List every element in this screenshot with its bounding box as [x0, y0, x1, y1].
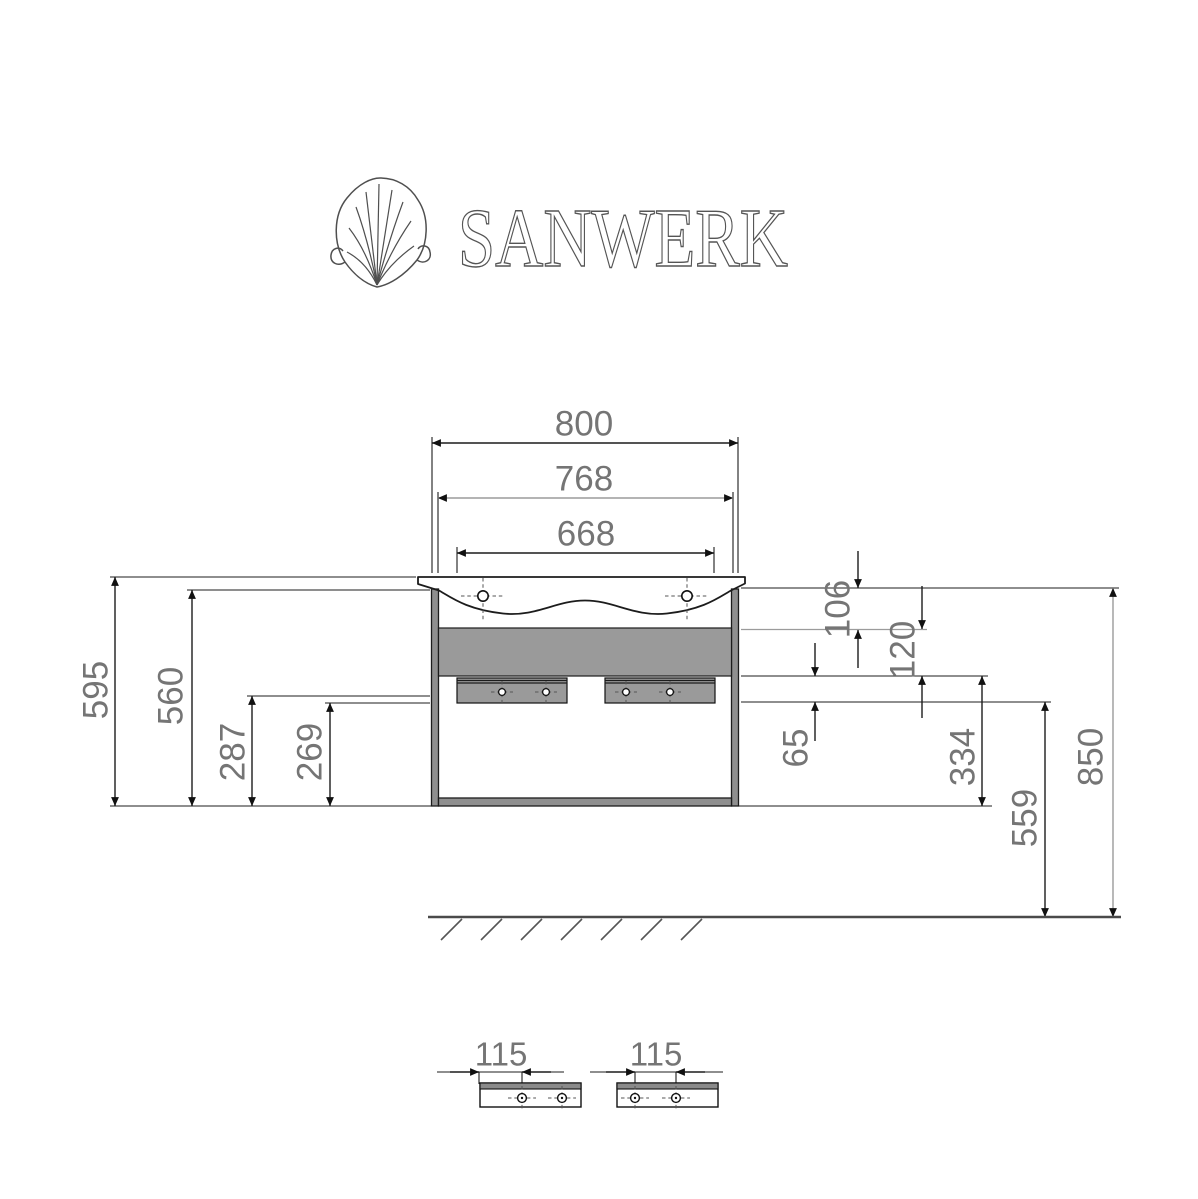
top-dimensions: 800 768 668: [432, 405, 738, 574]
scallop-shell-icon: [331, 178, 430, 287]
screw-hole: [499, 689, 506, 696]
washbasin: [418, 577, 745, 621]
bracket-rail-strip: [617, 1083, 718, 1089]
cabinet-left-panel: [432, 589, 439, 806]
screw-hole: [623, 689, 630, 696]
mounting-bracket-left: [457, 678, 567, 703]
cabinet: [432, 589, 739, 806]
dim-label-287: 287: [214, 723, 253, 781]
dim-label-560: 560: [152, 667, 191, 725]
brand-wordmark: SANWERK: [458, 192, 788, 285]
dim-label-269: 269: [291, 723, 330, 781]
screw-hole: [543, 689, 550, 696]
brand-logo: SANWERK: [331, 178, 788, 287]
mounting-bracket-right: [605, 678, 715, 703]
dim-label-106: 106: [819, 580, 858, 638]
dim-label-800: 800: [555, 405, 613, 444]
dim-label-65: 65: [777, 729, 816, 768]
left-dimensions: 595 560 287 269: [77, 577, 432, 806]
dim-label-115-left: 115: [475, 1036, 528, 1073]
cabinet-bottom-panel: [439, 798, 732, 806]
faucet-hole-left: [461, 578, 505, 621]
screw-hole-center: [675, 1097, 677, 1099]
bracket-detail-left: 115: [437, 1036, 581, 1112]
faucet-hole-right: [665, 578, 709, 621]
vanity-dimension-drawing: SANWERK: [0, 0, 1198, 1199]
floor-hatching: [441, 919, 702, 940]
dim-label-850: 850: [1072, 728, 1111, 786]
drawer-front-band: [439, 628, 732, 676]
bracket-rail-strip: [480, 1083, 581, 1089]
dim-label-120: 120: [884, 621, 923, 679]
technical-drawing-page: SANWERK: [0, 0, 1198, 1199]
dim-label-768: 768: [555, 460, 613, 499]
floor: [428, 917, 1121, 940]
dim-label-668: 668: [557, 515, 615, 554]
faucet-hole: [478, 591, 488, 601]
dim-label-595: 595: [77, 661, 116, 719]
screw-hole: [667, 689, 674, 696]
basin-outline: [418, 577, 745, 614]
bracket-body: [457, 678, 567, 703]
faucet-hole: [682, 591, 692, 601]
screw-hole-center: [521, 1097, 523, 1099]
screw-hole-center: [634, 1097, 636, 1099]
shell-ribs: [347, 184, 414, 285]
shell-left-curl: [331, 248, 345, 264]
cabinet-right-panel: [732, 589, 739, 806]
right-dimensions: 106 120 65 334 559 850: [738, 551, 1119, 917]
bracket-detail-right: 115: [590, 1036, 723, 1112]
dim-label-334: 334: [944, 728, 983, 786]
dim-label-115-right: 115: [630, 1036, 683, 1073]
screw-hole-center: [561, 1097, 563, 1099]
bracket-body: [605, 678, 715, 703]
dim-label-559: 559: [1006, 789, 1045, 847]
